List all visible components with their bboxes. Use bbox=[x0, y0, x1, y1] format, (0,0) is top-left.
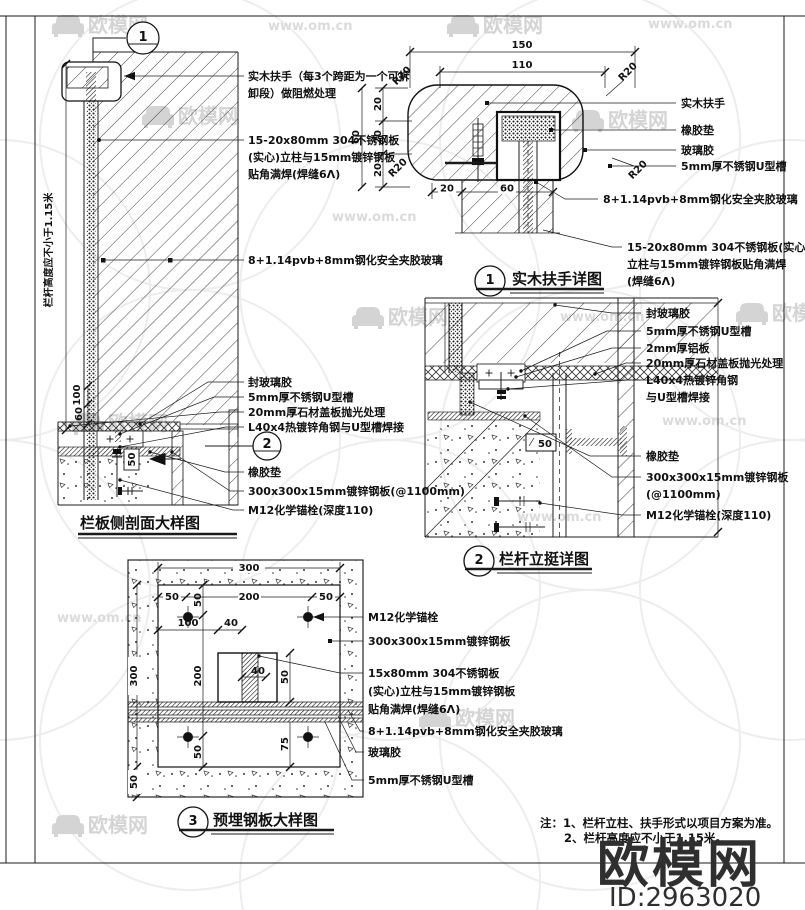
d4-dim-200-row: 200 bbox=[239, 592, 260, 603]
wm-url: www.om.cn bbox=[648, 17, 733, 32]
d2-dim-20c: 20 bbox=[373, 163, 384, 177]
d2-dim-110: 110 bbox=[512, 60, 533, 71]
d2-label-wood: 实木扶手 bbox=[681, 96, 725, 110]
d4-dim-50-row-a: 50 bbox=[165, 592, 179, 603]
d1-label-seal: 封玻璃胶 bbox=[248, 375, 292, 389]
d3-label-angle-2: 与U型槽焊接 bbox=[646, 390, 710, 404]
d4-dim-50-col-b: 50 bbox=[193, 745, 204, 759]
d1-label-rubber: 橡胶垫 bbox=[248, 465, 281, 479]
d1-label-handrail-1: 实木扶手（每3个跨距为一个可拆 bbox=[248, 69, 410, 83]
d1-dim-60: 60 bbox=[74, 407, 85, 421]
d4-post-section bbox=[242, 653, 258, 702]
d4-label-glass: 8+1.14pvb+8mm钢化安全夹胶玻璃 bbox=[368, 724, 563, 738]
d2-label-channel: 5mm厚不锈钢U型槽 bbox=[681, 159, 787, 173]
d4-dim-300-top: 300 bbox=[239, 563, 260, 574]
d4-dim-40-a: 40 bbox=[224, 618, 238, 629]
d1-label-post-2: (实心)立柱与15mm镀锌钢板 bbox=[248, 150, 396, 164]
d4-label-post-1: 15x80mm 304不锈钢板 bbox=[368, 666, 500, 680]
d1-label-handrail-2: 卸段）做阻燃处理 bbox=[248, 86, 336, 100]
d4-dim-100: 100 bbox=[178, 618, 199, 629]
d2-label-post-1: 15-20x80mm 304不锈钢板(实心) bbox=[627, 240, 805, 254]
d4-title-text: 预埋钢板大样图 bbox=[213, 811, 318, 829]
d1-title: 栏板侧剖面大样图 bbox=[78, 514, 237, 538]
d2-title-number: 1 bbox=[485, 273, 494, 288]
d2-label-post-2: 立柱与15mm镀锌钢板贴角满焊 bbox=[627, 257, 786, 271]
sofa-icon bbox=[52, 15, 84, 37]
d4-label-post-3: 贴角满焊(焊缝6Λ) bbox=[367, 702, 460, 716]
cad-sheet: 欧模网 欧模网 www.om.cn www.om.cn 欧模网 欧模网 www.… bbox=[0, 0, 805, 910]
d3-dim-50: 50 bbox=[538, 439, 552, 450]
d2-dimensions-top: 150 110 bbox=[406, 40, 639, 88]
d2-label-rubber: 橡胶垫 bbox=[681, 123, 714, 137]
d1-label-stone: 20mm厚石材盖板抛光处理 bbox=[248, 405, 385, 419]
d1-section-ref-number: 2 bbox=[262, 437, 271, 452]
sofa-icon bbox=[447, 15, 479, 37]
d2-dim-20b: 20 bbox=[373, 130, 384, 144]
d3-label-rubber: 橡胶垫 bbox=[646, 449, 679, 463]
wm-brand: 欧模网 bbox=[483, 13, 543, 37]
d3-label-seal: 封玻璃胶 bbox=[646, 306, 690, 320]
d4-dim-50-row-b: 50 bbox=[319, 592, 333, 603]
d4-dim-75: 75 bbox=[280, 737, 291, 751]
d3-label-alum: 2mm厚铝板 bbox=[646, 341, 711, 355]
d4-label-channel: 5mm厚不锈钢U型槽 bbox=[368, 773, 474, 787]
d2-dim-20a: 20 bbox=[373, 97, 384, 111]
wm-brand: 欧模网 bbox=[88, 813, 148, 837]
d3-label-stone: 20mm厚石材盖板抛光处理 bbox=[646, 356, 783, 370]
d3-title-text: 栏杆立挺详图 bbox=[499, 550, 589, 568]
d2-dim-60-bottom: 60 bbox=[500, 184, 514, 195]
d1-label-glass: 8+1.14pvb+8mm钢化安全夹胶玻璃 bbox=[248, 253, 443, 267]
d3-label-channel: 5mm厚不锈钢U型槽 bbox=[646, 324, 752, 338]
d2-r20-top-right: R20 bbox=[617, 61, 640, 84]
d1-label-channel: 5mm厚不锈钢U型槽 bbox=[248, 390, 354, 404]
d4-dim-50-v: 50 bbox=[280, 670, 291, 684]
watermark-large: 欧模网 ID:2963020 bbox=[597, 835, 762, 910]
d4-label-anchor: M12化学锚栓 bbox=[368, 610, 438, 624]
detail-1-railing-section: 1 栏杆高度应不小于1.15米 100 60 50 实木扶手（每3个跨距为一个可… bbox=[42, 22, 465, 538]
d1-title-text: 栏板侧剖面大样图 bbox=[80, 514, 200, 532]
d3-glass bbox=[449, 303, 462, 373]
d1-height-note: 栏杆高度应不小于1.15米 bbox=[42, 192, 55, 308]
d1-dim-100: 100 bbox=[72, 385, 83, 406]
wm-brand: 欧模网 bbox=[772, 301, 805, 325]
sofa-icon bbox=[352, 307, 384, 329]
d2-r20-bottom-right: R20 bbox=[627, 159, 650, 182]
d2-rubber-pad bbox=[502, 116, 555, 141]
wm-url: www.om.cn bbox=[268, 19, 353, 34]
d3-label-angle-1: L40x4热镀锌角钢 bbox=[646, 373, 738, 387]
d1-glass-panel bbox=[87, 101, 96, 500]
note-line-1: 注：1、栏杆立柱、扶手形式以项目方案为准。 bbox=[540, 816, 778, 830]
d3-title-number: 2 bbox=[474, 553, 483, 568]
d2-title-text: 实木扶手详图 bbox=[512, 270, 602, 288]
d1-dim-50: 50 bbox=[127, 453, 138, 467]
d4-label-plate: 300x300x15mm镀锌钢板 bbox=[368, 634, 511, 648]
d2-dimensions-left: 20 20 20 60 bbox=[351, 84, 412, 191]
sofa-icon bbox=[736, 303, 768, 325]
d4-label-glue: 玻璃胶 bbox=[368, 745, 401, 759]
d4-dim-40-b: 40 bbox=[251, 666, 265, 677]
d2-drawing bbox=[408, 85, 583, 233]
d1-drawing bbox=[58, 52, 238, 505]
watermark-id: ID:2963020 bbox=[609, 883, 761, 910]
d2-label-glass: 8+1.14pvb+8mm钢化安全夹胶玻璃 bbox=[603, 192, 798, 206]
d3-rubber bbox=[460, 373, 474, 415]
d2-dim-150: 150 bbox=[512, 40, 533, 51]
d1-label-post-3: 贴角满焊(焊缝6Λ) bbox=[247, 167, 340, 181]
d4-dim-200-col: 200 bbox=[193, 666, 204, 687]
d3-steel-plate bbox=[428, 412, 540, 420]
detail-3-post-section: 50 封玻璃胶 5mm厚不锈钢U型槽 2mm厚铝板 20mm厚石材盖板抛光处理 … bbox=[425, 298, 789, 576]
d4-dim-300-left: 300 bbox=[129, 666, 140, 687]
wm-url: www.om.cn bbox=[662, 414, 747, 429]
d2-label-post-3: (焊缝6Λ) bbox=[627, 274, 675, 288]
d1-callout-number: 1 bbox=[138, 30, 147, 45]
d2-dim-60v: 60 bbox=[351, 130, 362, 144]
d3-label-anchor: M12化学锚栓(深度110) bbox=[646, 508, 771, 522]
d4-label-post-2: (实心)立柱与15mm镀锌钢板 bbox=[368, 684, 516, 698]
d4-title-number: 3 bbox=[188, 814, 197, 829]
wm-brand: 欧模网 bbox=[608, 108, 668, 132]
d4-dim-50-col-a: 50 bbox=[193, 593, 204, 607]
sofa-icon bbox=[52, 815, 84, 837]
d3-label-plate-1: 300x300x15mm镀锌钢板 bbox=[646, 470, 789, 484]
d4-dim-50-bottom-left: 50 bbox=[129, 775, 140, 789]
wm-url: www.om.cn bbox=[332, 210, 417, 225]
detail-4-embedded-plate: 300 50 200 50 300 50 50 200 50 100 40 40… bbox=[128, 560, 563, 837]
d3-label-plate-2: (@1100mm) bbox=[646, 488, 721, 501]
d3-wall-column bbox=[618, 298, 634, 537]
d2-label-glue: 玻璃胶 bbox=[681, 143, 714, 157]
d4-title: 3 预埋钢板大样图 bbox=[178, 807, 334, 837]
d1-label-angle: L40x4热镀锌角钢与U型槽焊接 bbox=[248, 420, 404, 434]
d3-title: 2 栏杆立挺详图 bbox=[464, 546, 592, 576]
d1-label-anchor: M12化学锚栓(深度110) bbox=[248, 503, 373, 517]
d2-dim-20-bottom: 20 bbox=[440, 184, 454, 195]
